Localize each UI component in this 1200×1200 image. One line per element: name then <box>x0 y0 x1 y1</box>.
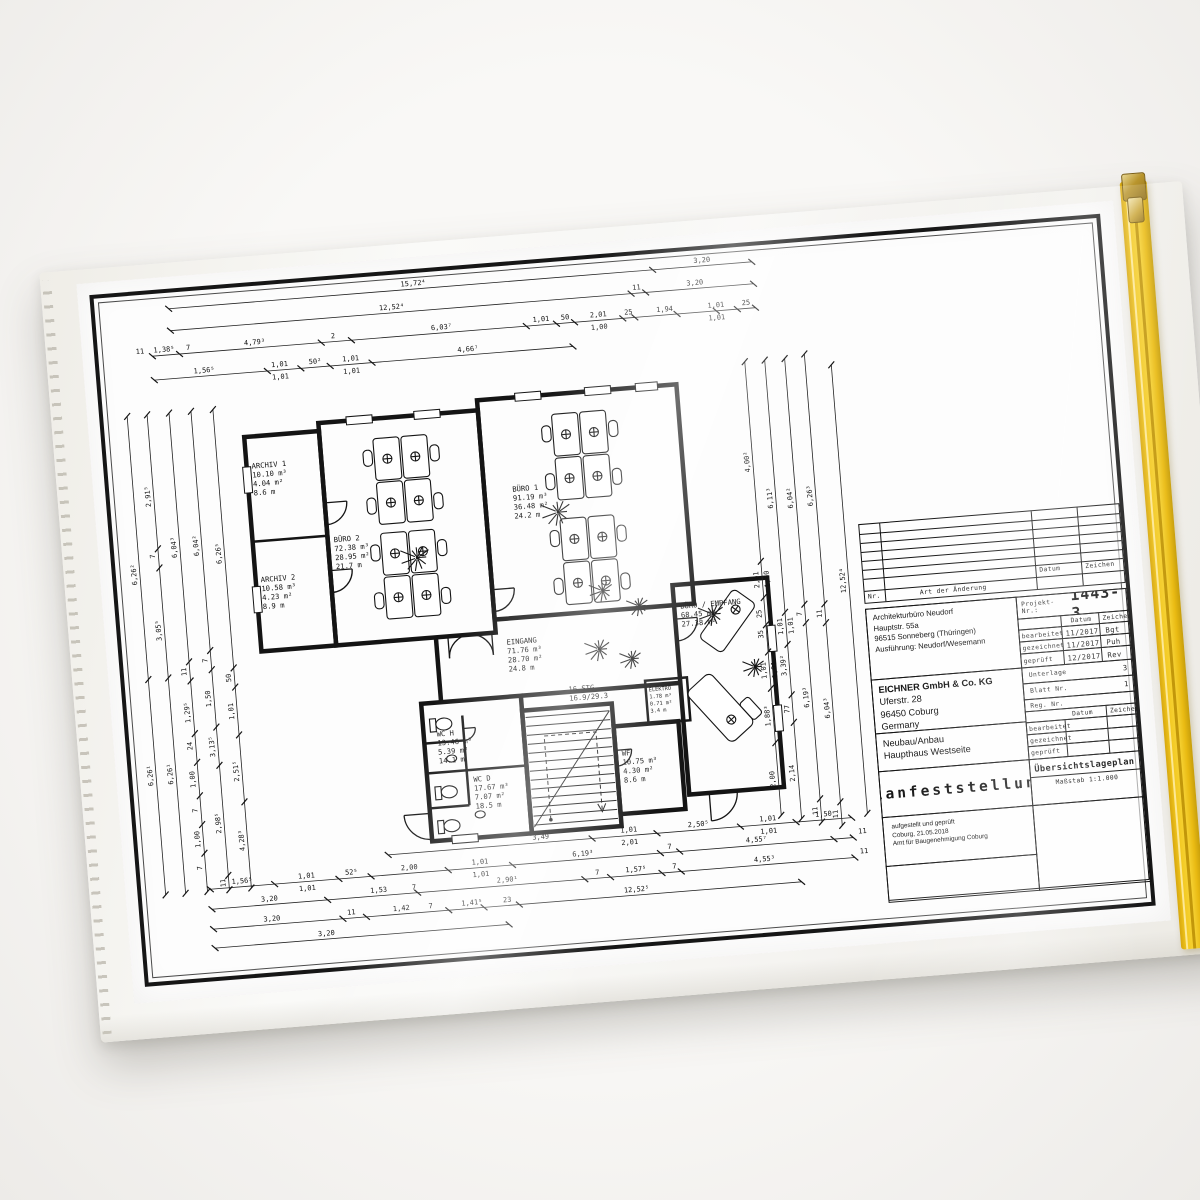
svg-text:12,52⁵: 12,52⁵ <box>624 885 650 895</box>
svg-text:2,51⁵: 2,51⁵ <box>232 760 242 782</box>
svg-text:3,39²: 3,39² <box>779 655 789 677</box>
svg-text:6,26³: 6,26³ <box>805 485 815 507</box>
svg-text:12,52⁴: 12,52⁴ <box>838 568 848 594</box>
svg-text:50²: 50² <box>308 357 321 366</box>
svg-text:1,57⁵: 1,57⁵ <box>625 865 647 875</box>
svg-text:6,11³: 6,11³ <box>765 487 775 509</box>
rev-nr-label: Nr. <box>868 593 881 601</box>
svg-text:6,04³: 6,04³ <box>169 537 179 559</box>
svg-text:2,90¹: 2,90¹ <box>496 875 518 885</box>
svg-text:50: 50 <box>225 673 234 682</box>
svg-text:15,72⁴: 15,72⁴ <box>400 279 426 289</box>
svg-text:11: 11 <box>135 347 144 356</box>
svg-text:7: 7 <box>201 658 209 663</box>
svg-text:ARCHIV 210.58 m³4.23 m²8.9 m: ARCHIV 210.58 m³4.23 m²8.9 m <box>260 572 297 611</box>
plan-protection-sleeve: 15,72⁴3,2012,52⁴113,20111,38⁵74,79³26,03… <box>39 181 1200 1042</box>
svg-text:WC H13.46 m³5.39 m²14.1 m: WC H13.46 m³5.39 m²14.1 m <box>436 727 473 766</box>
svg-text:77: 77 <box>783 705 792 714</box>
svg-text:2: 2 <box>330 332 335 340</box>
floor-plan-svg: 15,72⁴3,2012,52⁴113,20111,38⁵74,79³26,03… <box>108 238 900 971</box>
svg-text:1,00: 1,00 <box>188 771 197 788</box>
svg-text:1,01: 1,01 <box>759 814 776 823</box>
svg-text:2,91⁵: 2,91⁵ <box>143 486 153 508</box>
title-block-main: Architekturbüro Neudorf Hauptstr. 55a 96… <box>865 588 1150 901</box>
svg-text:1,01: 1,01 <box>708 313 725 322</box>
desk-clusters <box>361 409 631 620</box>
svg-text:ELEKTRO1.78 m³0.71 m²3.4 m: ELEKTRO1.78 m³0.71 m²3.4 m <box>649 686 673 715</box>
svg-text:2,00: 2,00 <box>400 863 417 872</box>
svg-text:1,38⁵: 1,38⁵ <box>153 345 175 355</box>
svg-text:3,20: 3,20 <box>261 894 278 903</box>
staircase <box>526 711 619 827</box>
svg-text:1,01: 1,01 <box>759 662 768 679</box>
svg-text:7: 7 <box>149 554 157 559</box>
svg-text:1,01: 1,01 <box>776 618 785 635</box>
svg-text:BÜRO 191.19 m³36.48 m²24.2 m: BÜRO 191.19 m³36.48 m²24.2 m <box>512 482 549 521</box>
svg-text:7: 7 <box>672 862 677 870</box>
svg-text:24: 24 <box>186 741 195 750</box>
svg-text:1,94: 1,94 <box>656 305 673 314</box>
svg-text:1,01: 1,01 <box>299 884 316 893</box>
svg-text:7: 7 <box>796 611 804 616</box>
svg-text:11: 11 <box>180 667 189 676</box>
svg-text:3,20: 3,20 <box>693 256 710 265</box>
svg-text:25: 25 <box>624 308 633 317</box>
svg-text:6,04²: 6,04² <box>191 535 201 557</box>
svg-text:1,01: 1,01 <box>770 661 779 678</box>
svg-text:11: 11 <box>860 847 869 856</box>
svg-text:3,05⁵: 3,05⁵ <box>154 620 164 642</box>
svg-text:35: 35 <box>757 630 766 639</box>
svg-text:2,14: 2,14 <box>788 764 797 781</box>
svg-text:1,41⁵: 1,41⁵ <box>461 898 483 908</box>
svg-text:6,26⁵: 6,26⁵ <box>214 543 224 565</box>
svg-text:25: 25 <box>755 609 764 618</box>
svg-text:EINGANG71.76 m³28.70 m²24.8 m: EINGANG71.76 m³28.70 m²24.8 m <box>506 635 543 674</box>
svg-text:3,20: 3,20 <box>263 914 280 923</box>
svg-text:11: 11 <box>219 878 228 887</box>
svg-text:25: 25 <box>741 299 750 308</box>
svg-text:6,04²: 6,04² <box>786 487 796 509</box>
svg-text:1,01: 1,01 <box>620 825 637 834</box>
svg-text:2,01: 2,01 <box>752 571 761 588</box>
svg-text:1,01: 1,01 <box>227 703 236 720</box>
plan-sheet: 15,72⁴3,2012,52⁴113,20111,38⁵74,79³26,03… <box>76 201 1171 1004</box>
rev-zeichen-label: Zeichen <box>1085 561 1115 570</box>
svg-text:6,26¹: 6,26¹ <box>166 763 176 785</box>
svg-text:WC D17.67 m³7.07 m²18.5 m: WC D17.67 m³7.07 m²18.5 m <box>473 772 510 811</box>
svg-text:3,20: 3,20 <box>686 278 703 287</box>
svg-text:1,56⁵: 1,56⁵ <box>193 366 215 376</box>
svg-text:4,79³: 4,79³ <box>244 338 266 348</box>
svg-text:2,50⁵: 2,50⁵ <box>687 820 709 830</box>
svg-text:16 STG16.9/29.3: 16 STG16.9/29.3 <box>568 682 608 703</box>
svg-text:1,01: 1,01 <box>272 372 289 381</box>
svg-text:4,28³: 4,28³ <box>237 830 247 852</box>
architect-info: Architekturbüro Neudorf Hauptstr. 55a 96… <box>865 597 1022 681</box>
svg-text:3,49: 3,49 <box>532 832 549 841</box>
svg-text:7: 7 <box>667 843 672 851</box>
svg-text:6,26¹: 6,26¹ <box>146 765 156 787</box>
svg-text:1,01: 1,01 <box>271 360 288 369</box>
svg-text:1,42: 1,42 <box>393 904 410 913</box>
svg-text:7: 7 <box>196 866 204 871</box>
svg-text:23: 23 <box>503 896 512 905</box>
svg-text:BÜRO 272.38 m³28.95 m²21.7 m: BÜRO 272.38 m³28.95 m²21.7 m <box>333 532 370 571</box>
svg-text:7: 7 <box>412 883 417 891</box>
svg-text:1,53: 1,53 <box>370 886 387 895</box>
svg-text:ARCHIV 110.10 m³4.04 m²8.6 m: ARCHIV 110.10 m³4.04 m²8.6 m <box>251 459 288 498</box>
svg-text:1,01: 1,01 <box>532 315 549 324</box>
svg-text:12,52⁴: 12,52⁴ <box>379 302 405 312</box>
svg-text:1,01: 1,01 <box>786 617 795 634</box>
svg-text:50: 50 <box>561 313 570 322</box>
svg-text:4,66⁷: 4,66⁷ <box>457 345 479 355</box>
svg-text:1,88³: 1,88³ <box>763 705 773 727</box>
svg-text:1,01: 1,01 <box>298 871 315 880</box>
title-block: Datum Zeichen Nr. Art der Änderung Archi… <box>858 503 1149 901</box>
svg-text:7: 7 <box>186 344 191 352</box>
svg-text:11: 11 <box>811 806 820 815</box>
zipper-pull-tab <box>1127 196 1145 223</box>
svg-text:6,04³: 6,04³ <box>822 697 832 719</box>
svg-text:1,01: 1,01 <box>707 301 724 310</box>
svg-text:7: 7 <box>428 902 433 910</box>
svg-text:1,01: 1,01 <box>342 354 359 363</box>
svg-text:1,50: 1,50 <box>204 690 213 707</box>
document-title: Planfeststellung <box>878 773 1033 804</box>
svg-text:6,03⁷: 6,03⁷ <box>431 323 453 333</box>
svg-text:1,29⁵: 1,29⁵ <box>183 702 193 724</box>
svg-text:1,01: 1,01 <box>471 857 488 866</box>
svg-text:2,01: 2,01 <box>621 838 638 847</box>
svg-text:6,19³: 6,19³ <box>572 849 594 859</box>
svg-text:1,00: 1,00 <box>591 323 608 332</box>
svg-text:11: 11 <box>347 908 356 917</box>
svg-text:3,13⁵: 3,13⁵ <box>208 736 218 758</box>
svg-text:1,56⁵: 1,56⁵ <box>231 876 253 886</box>
svg-text:6,26²: 6,26² <box>130 564 140 586</box>
svg-text:2,98⁵: 2,98⁵ <box>214 812 224 834</box>
empty-cell-right <box>1032 796 1152 891</box>
svg-text:7: 7 <box>191 808 199 813</box>
svg-text:1,00: 1,00 <box>763 570 772 587</box>
svg-text:1,01: 1,01 <box>343 367 360 376</box>
svg-text:1,00: 1,00 <box>193 831 202 848</box>
projekt-nr-label: Projekt-Nr.: <box>1021 597 1067 615</box>
svg-text:1,01: 1,01 <box>472 870 489 879</box>
svg-text:11: 11 <box>832 810 841 819</box>
svg-text:6,19³: 6,19³ <box>802 686 812 708</box>
svg-text:11: 11 <box>815 609 824 618</box>
svg-text:4,00²: 4,00² <box>742 451 752 473</box>
svg-text:2,00: 2,00 <box>768 771 777 788</box>
svg-text:3,20: 3,20 <box>318 929 335 938</box>
svg-text:11: 11 <box>632 283 641 292</box>
svg-text:2,01: 2,01 <box>590 310 607 319</box>
svg-text:11: 11 <box>858 827 867 836</box>
product-photo: 15,72⁴3,2012,52⁴113,20111,38⁵74,79³26,03… <box>0 0 1200 1200</box>
svg-text:WF10.75 m³4.30 m²8.6 m: WF10.75 m³4.30 m²8.6 m <box>621 746 658 785</box>
svg-text:7: 7 <box>595 869 600 877</box>
svg-text:4,55⁷: 4,55⁷ <box>746 835 768 845</box>
svg-text:4,55³: 4,55³ <box>754 854 776 864</box>
svg-text:52⁵: 52⁵ <box>345 868 358 877</box>
floor-plan: 15,72⁴3,2012,52⁴113,20111,38⁵74,79³26,03… <box>108 238 900 971</box>
